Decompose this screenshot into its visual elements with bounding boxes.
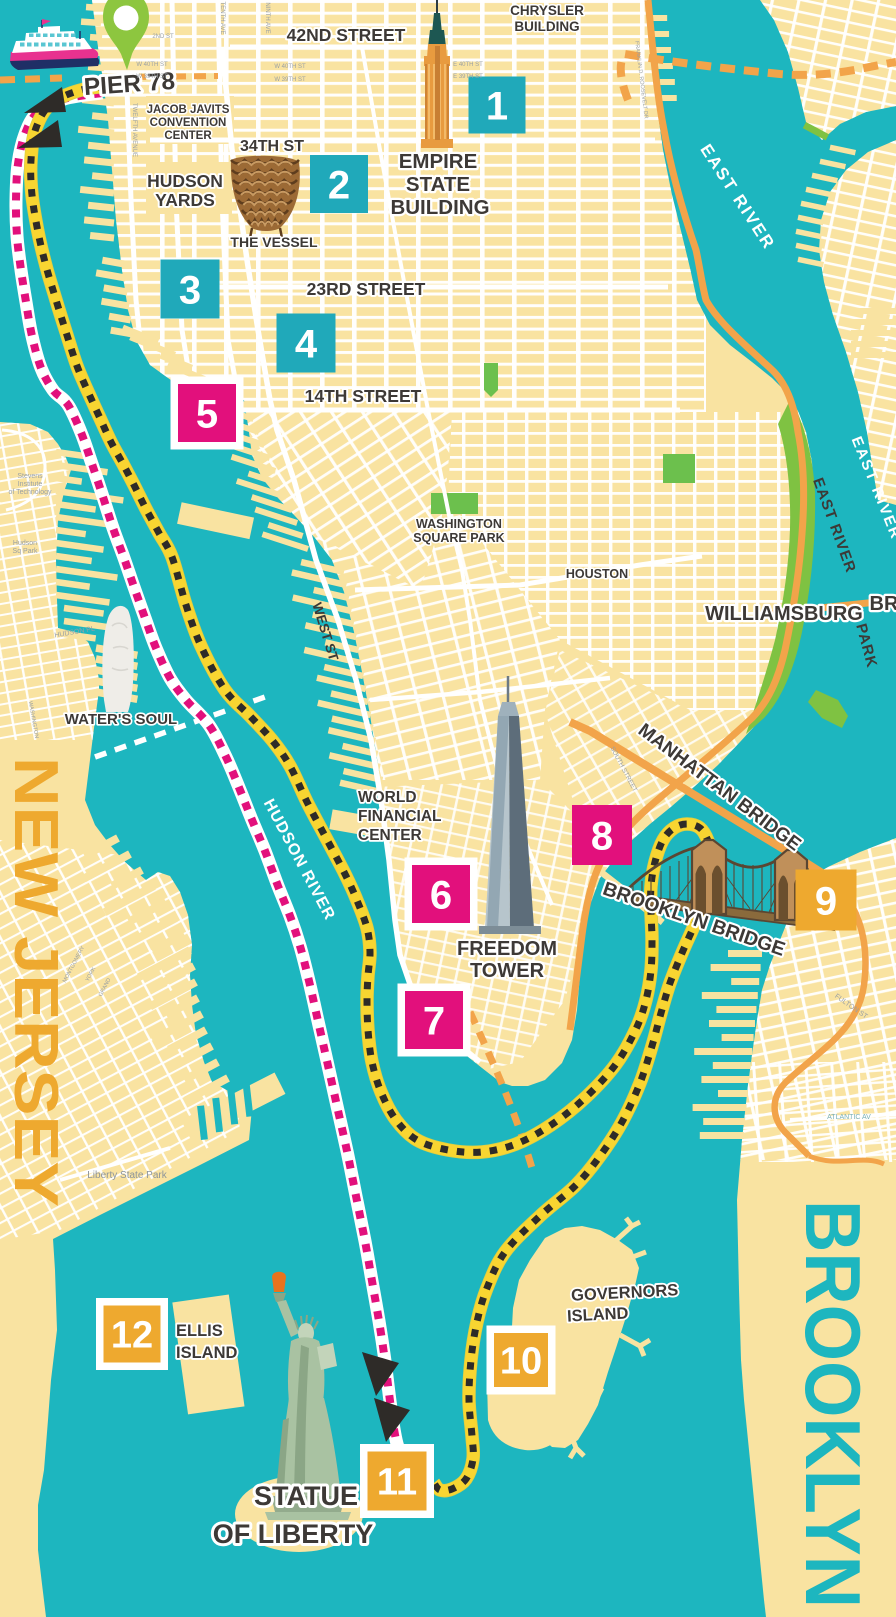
svg-text:W 39TH ST: W 39TH ST	[136, 74, 168, 80]
svg-text:34TH ST: 34TH ST	[240, 138, 304, 155]
svg-text:4: 4	[295, 322, 318, 366]
svg-text:W 40TH ST: W 40TH ST	[136, 62, 168, 68]
svg-text:TENTH AVE: TENTH AVE	[219, 2, 225, 35]
svg-text:5: 5	[196, 392, 218, 436]
svg-text:HOUSTON: HOUSTON	[566, 567, 628, 581]
svg-text:9: 9	[815, 879, 837, 923]
svg-text:NINTH AVE: NINTH AVE	[264, 2, 270, 33]
svg-text:OF LIBERTY: OF LIBERTY	[213, 1519, 374, 1549]
svg-text:STATE: STATE	[406, 173, 470, 196]
svg-text:Hudson: Hudson	[13, 540, 37, 547]
svg-text:ISLAND: ISLAND	[567, 1304, 629, 1325]
svg-text:THE VESSEL: THE VESSEL	[230, 234, 318, 250]
svg-text:11: 11	[377, 1462, 417, 1504]
svg-text:JACOB JAVITS: JACOB JAVITS	[147, 104, 230, 116]
svg-text:10: 10	[500, 1341, 542, 1383]
svg-text:23RD STREET: 23RD STREET	[307, 279, 426, 299]
svg-text:6: 6	[430, 873, 452, 917]
svg-text:CONVENTION: CONVENTION	[150, 117, 227, 129]
svg-text:ATLANTIC AV: ATLANTIC AV	[827, 1114, 871, 1121]
svg-text:Stevens: Stevens	[17, 473, 43, 480]
svg-text:TOWER: TOWER	[470, 960, 545, 982]
svg-text:W 39TH ST: W 39TH ST	[274, 77, 306, 83]
svg-text:of Technology: of Technology	[8, 489, 52, 496]
svg-text:ELLIS: ELLIS	[176, 1322, 223, 1340]
svg-text:Liberty State Park: Liberty State Park	[87, 1170, 167, 1181]
svg-text:NEW JERSEY: NEW JERSEY	[1, 757, 70, 1207]
svg-text:CHRYSLER: CHRYSLER	[510, 3, 584, 18]
svg-text:WILLIAMSBURG: WILLIAMSBURG	[705, 603, 863, 625]
svg-text:E 40TH ST: E 40TH ST	[453, 62, 483, 68]
svg-text:CENTER: CENTER	[358, 827, 422, 844]
svg-text:E 39TH ST: E 39TH ST	[453, 74, 483, 80]
svg-text:12: 12	[111, 1315, 153, 1357]
svg-text:FREEDOM: FREEDOM	[457, 938, 557, 960]
svg-text:2ND ST: 2ND ST	[152, 34, 174, 40]
svg-text:YARDS: YARDS	[155, 190, 215, 210]
svg-text:WORLD: WORLD	[358, 789, 417, 806]
svg-text:42ND STREET: 42ND STREET	[287, 25, 406, 45]
svg-text:7: 7	[423, 999, 445, 1043]
svg-text:BUILDING: BUILDING	[514, 19, 579, 34]
svg-text:BR: BR	[870, 593, 896, 615]
svg-text:BUILDING: BUILDING	[390, 196, 489, 219]
svg-text:3: 3	[179, 268, 201, 312]
svg-text:ISLAND: ISLAND	[176, 1344, 238, 1362]
svg-text:Institute: Institute	[18, 481, 43, 488]
svg-text:14TH STREET: 14TH STREET	[305, 386, 422, 406]
svg-text:W 40TH ST: W 40TH ST	[274, 64, 306, 70]
svg-text:BROOKLYN: BROOKLYN	[789, 1200, 877, 1608]
svg-text:STATUE: STATUE	[254, 1481, 358, 1511]
svg-text:WATER'S SOUL: WATER'S SOUL	[65, 711, 177, 728]
svg-text:WASHINGTON: WASHINGTON	[416, 517, 502, 531]
svg-text:CENTER: CENTER	[164, 130, 212, 142]
svg-text:8: 8	[591, 814, 613, 858]
svg-text:1: 1	[486, 84, 508, 128]
svg-text:2: 2	[328, 163, 350, 207]
svg-text:EMPIRE: EMPIRE	[399, 150, 478, 173]
svg-text:HUDSON: HUDSON	[147, 171, 223, 191]
svg-text:FINANCIAL: FINANCIAL	[358, 808, 442, 825]
svg-text:TWELFTH AVENUE: TWELFTH AVENUE	[131, 103, 137, 157]
svg-text:Sq Park: Sq Park	[13, 548, 38, 555]
svg-text:SQUARE PARK: SQUARE PARK	[413, 531, 504, 545]
